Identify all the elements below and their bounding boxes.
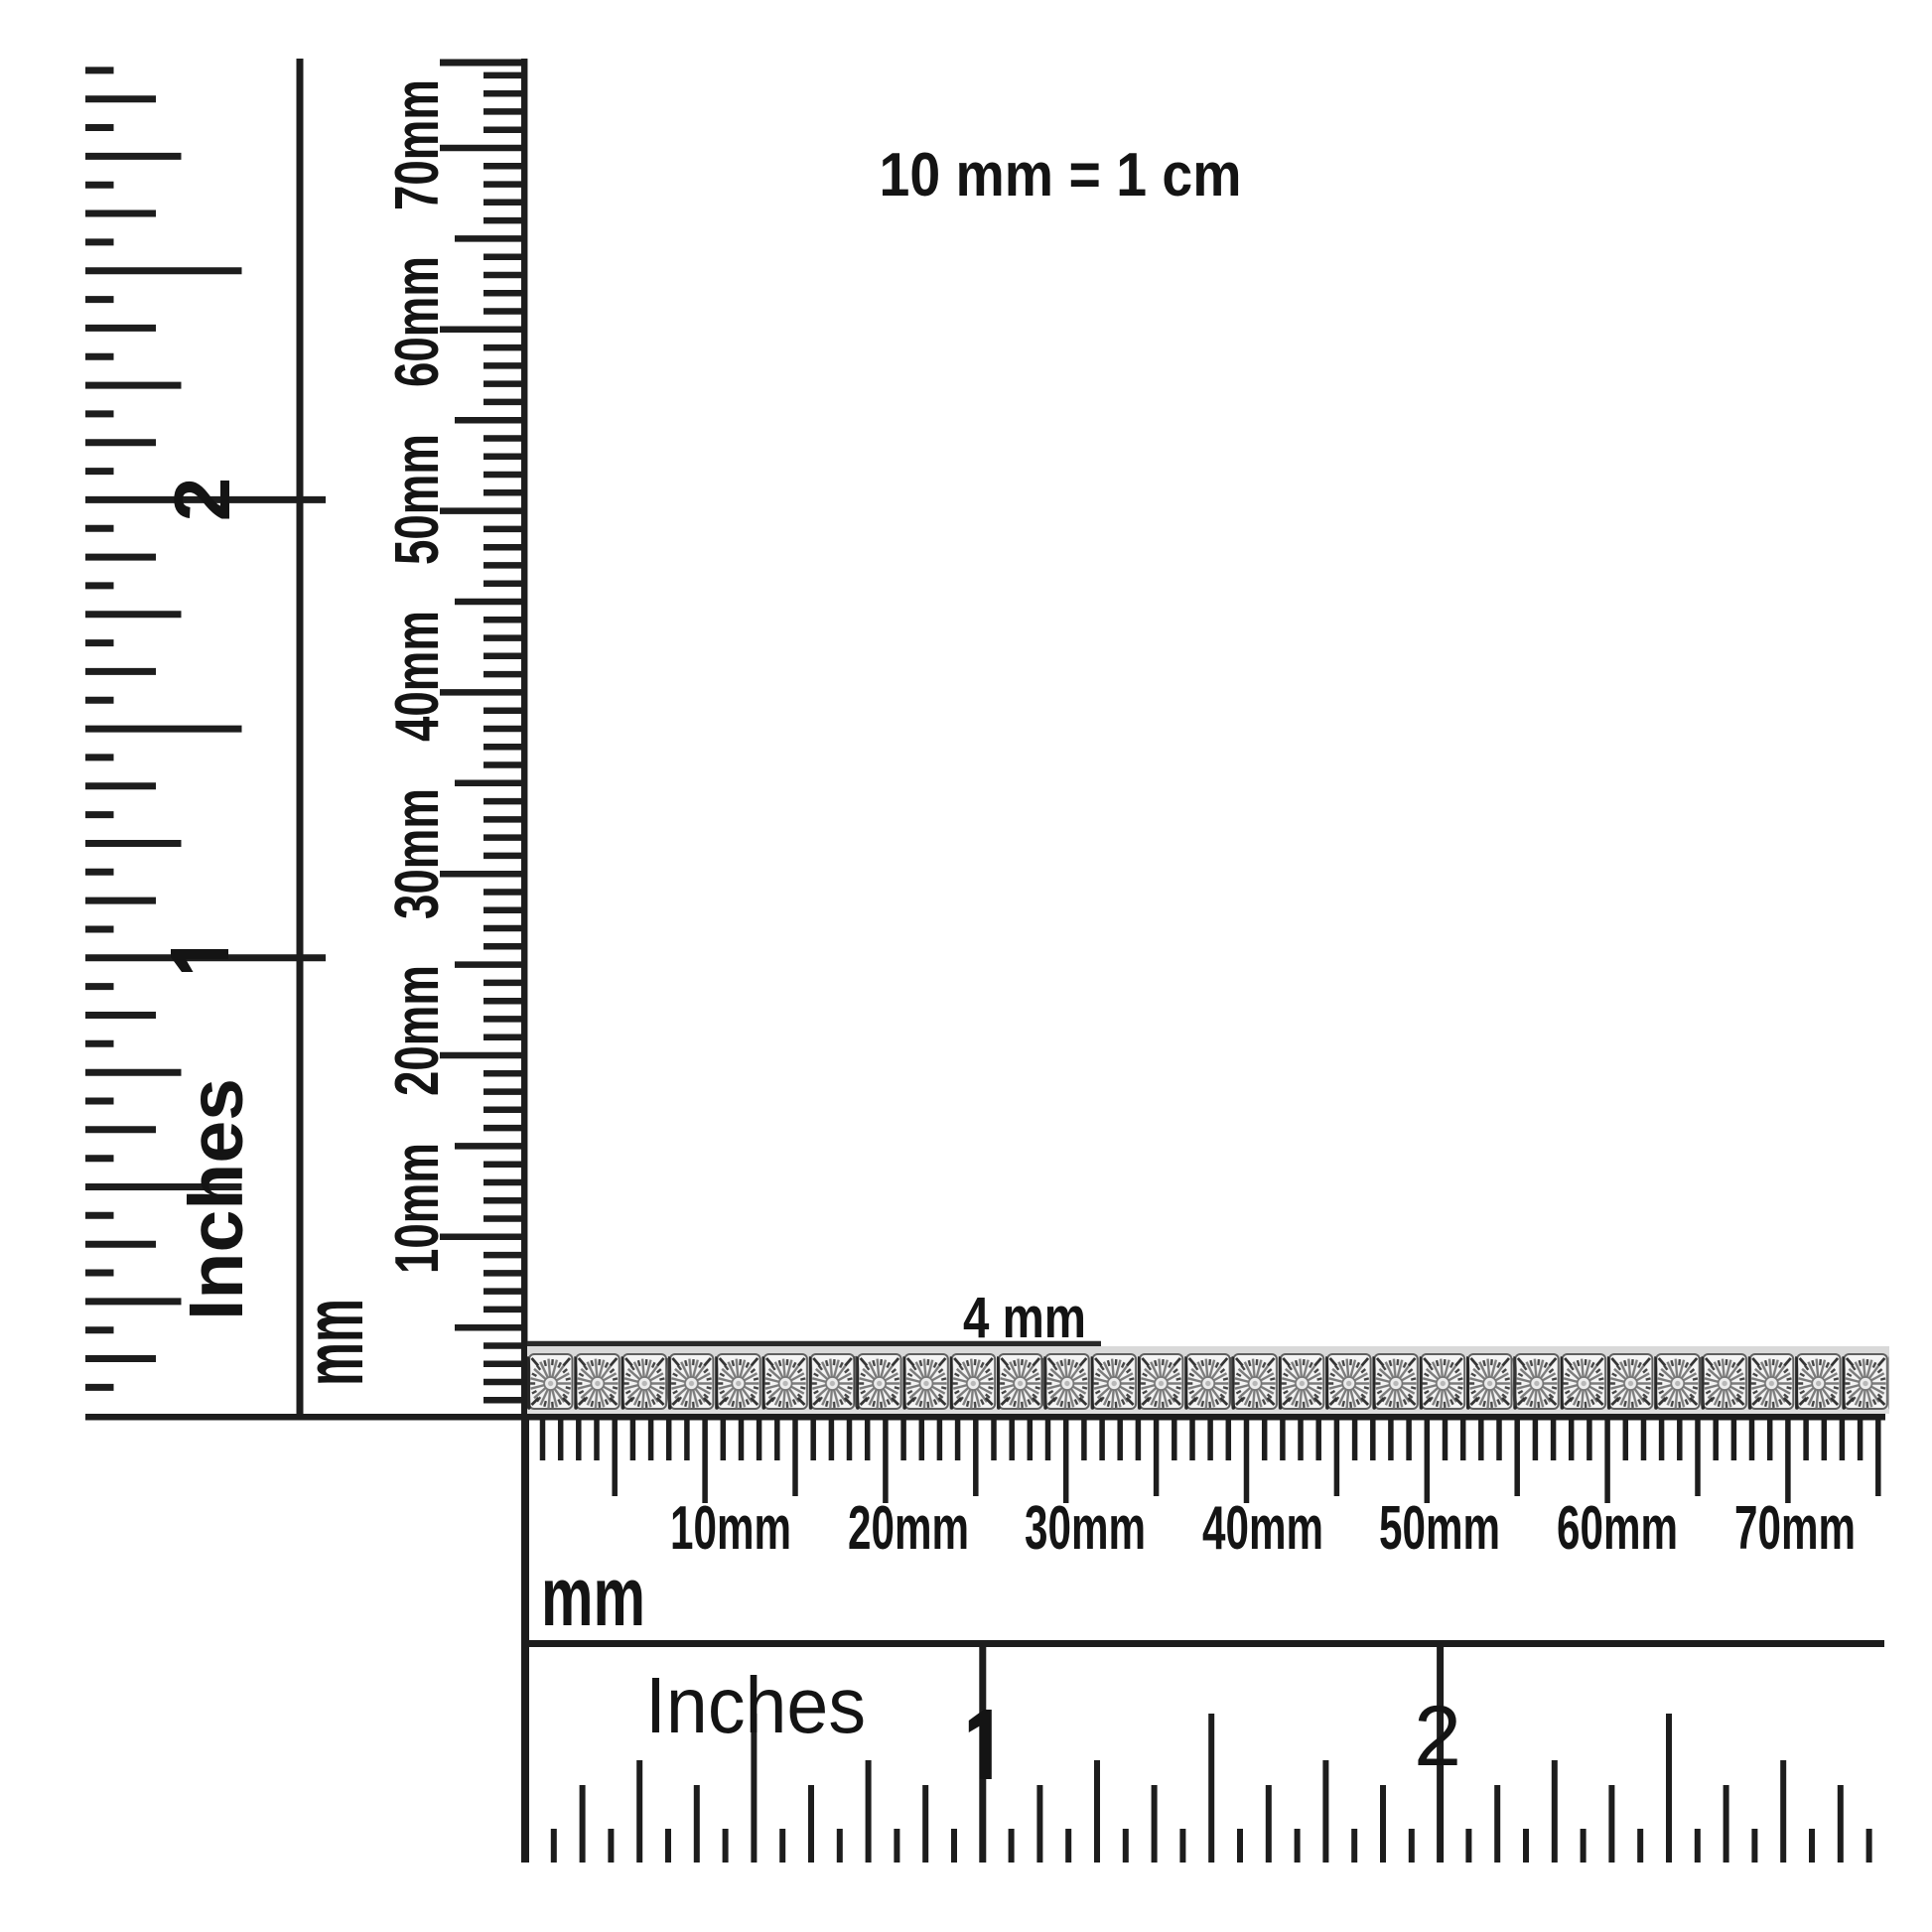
svg-text:4 mm: 4 mm [963, 1286, 1086, 1350]
svg-text:60mm: 60mm [1557, 1494, 1678, 1563]
svg-text:mm: mm [287, 1299, 380, 1386]
svg-text:10mm: 10mm [670, 1494, 791, 1563]
svg-text:Inches: Inches [174, 1078, 259, 1320]
svg-text:2: 2 [158, 478, 246, 522]
svg-text:30mm: 30mm [1025, 1494, 1146, 1563]
svg-text:10mm: 10mm [383, 1143, 452, 1274]
svg-text:60mm: 60mm [383, 256, 452, 387]
svg-text:mm: mm [541, 1550, 645, 1643]
svg-text:Inches: Inches [645, 1661, 866, 1749]
svg-text:40mm: 40mm [383, 611, 452, 742]
svg-text:70mm: 70mm [1734, 1494, 1856, 1563]
svg-text:20mm: 20mm [848, 1494, 969, 1563]
svg-text:10 mm = 1 cm: 10 mm = 1 cm [880, 141, 1242, 209]
svg-text:50mm: 50mm [383, 434, 452, 565]
svg-text:20mm: 20mm [383, 965, 452, 1096]
svg-text:70mm: 70mm [383, 79, 452, 210]
svg-text:40mm: 40mm [1202, 1494, 1323, 1563]
svg-text:2: 2 [1414, 1689, 1461, 1784]
svg-text:50mm: 50mm [1379, 1494, 1500, 1563]
svg-text:30mm: 30mm [383, 788, 452, 919]
